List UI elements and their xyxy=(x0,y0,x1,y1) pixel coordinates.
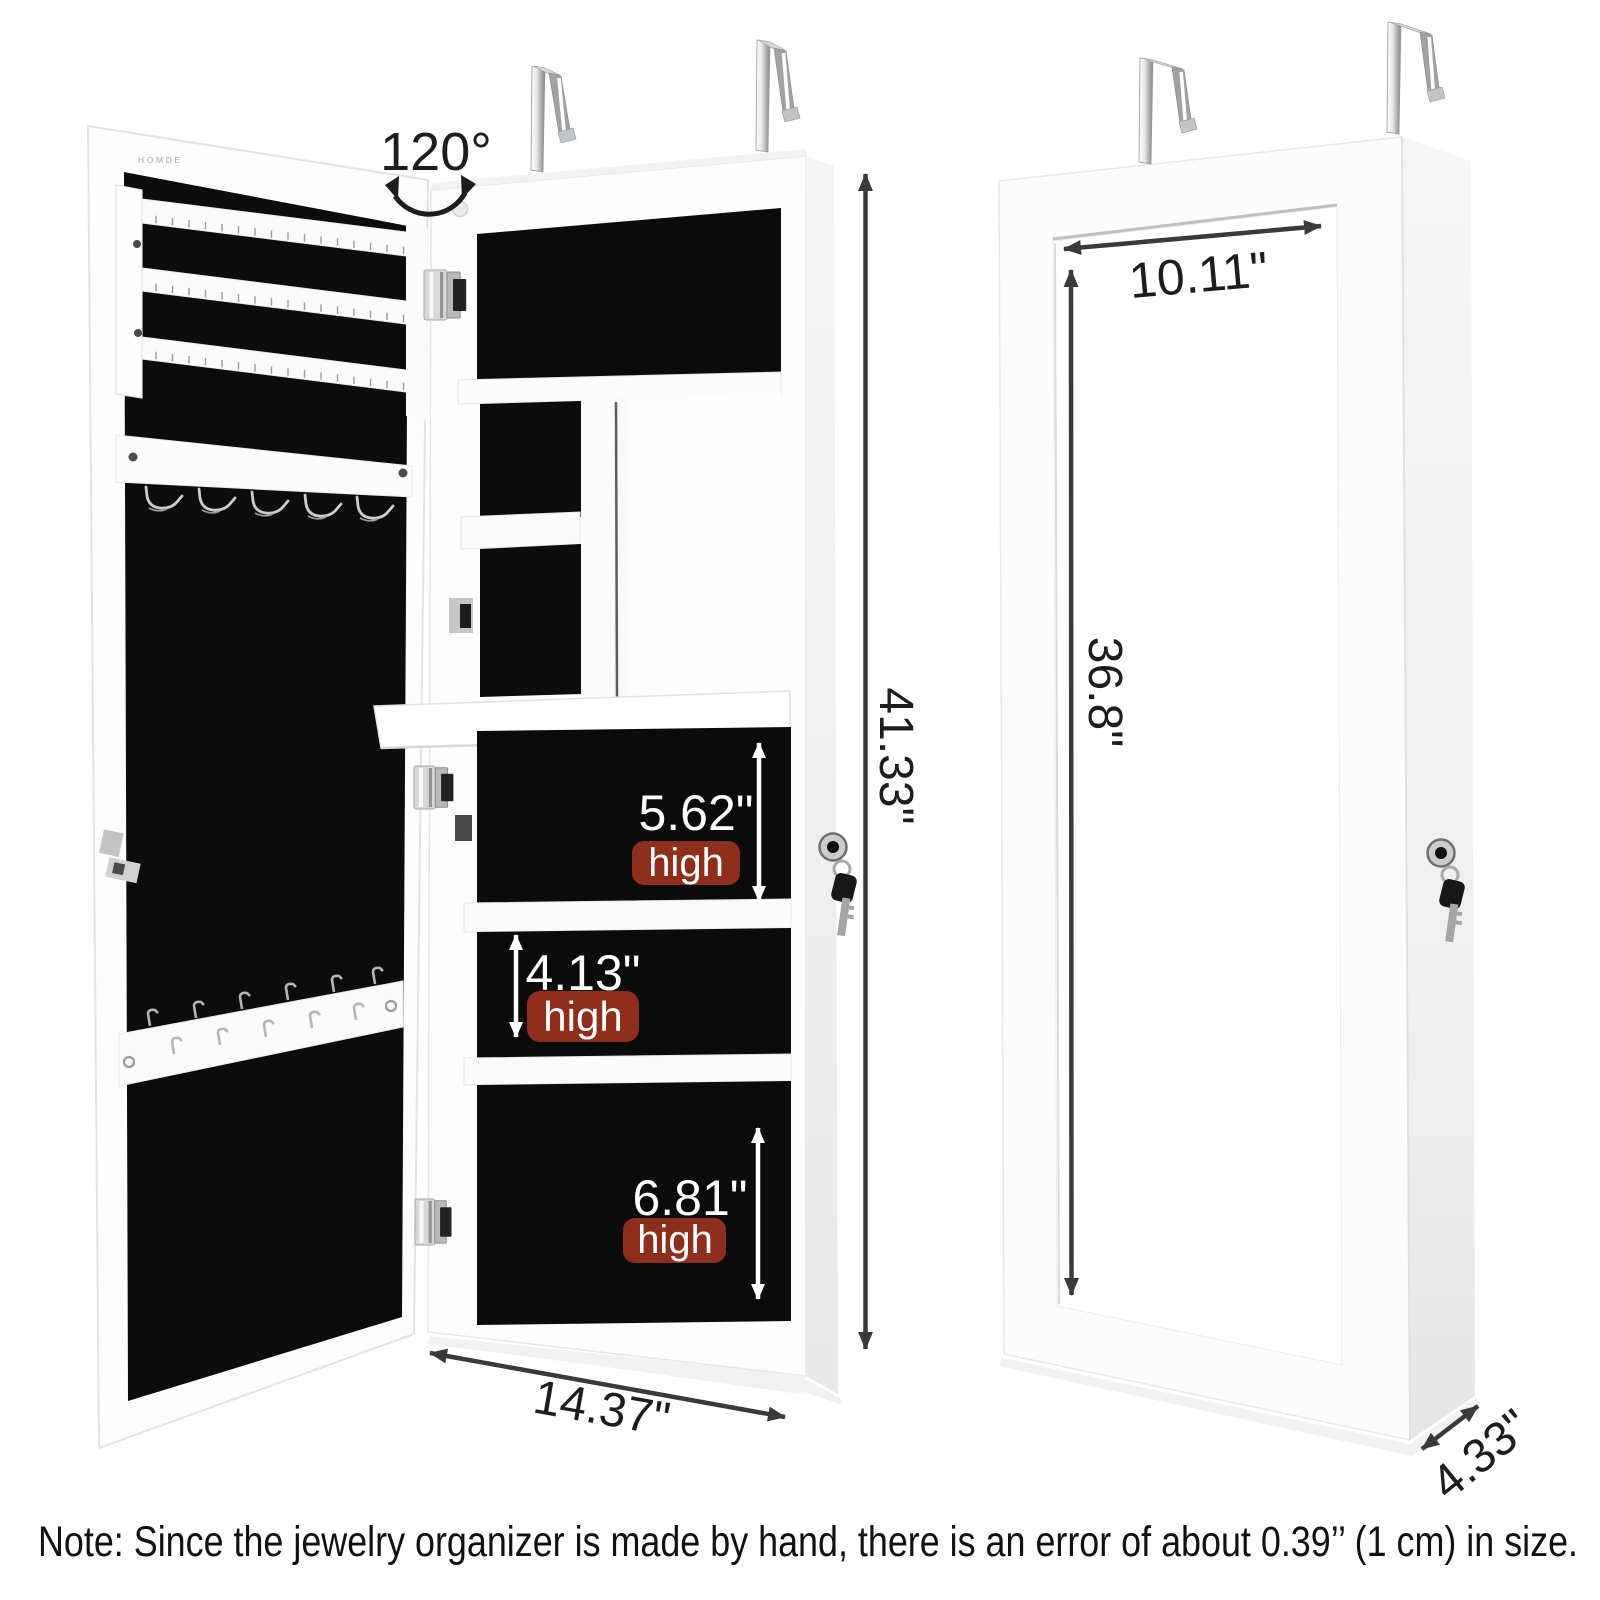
svg-text:high: high xyxy=(637,1218,713,1262)
svg-text:120°: 120° xyxy=(380,122,492,182)
svg-text:high: high xyxy=(543,993,622,1040)
svg-text:high: high xyxy=(648,841,724,885)
svg-text:41.33": 41.33" xyxy=(869,687,922,824)
svg-text:36.8": 36.8" xyxy=(1078,637,1131,747)
svg-text:HOMDE: HOMDE xyxy=(138,155,183,165)
svg-text:Note: Since the jewelry organi: Note: Since the jewelry organizer is mad… xyxy=(38,1518,1578,1566)
svg-text:5.62": 5.62" xyxy=(638,785,753,841)
